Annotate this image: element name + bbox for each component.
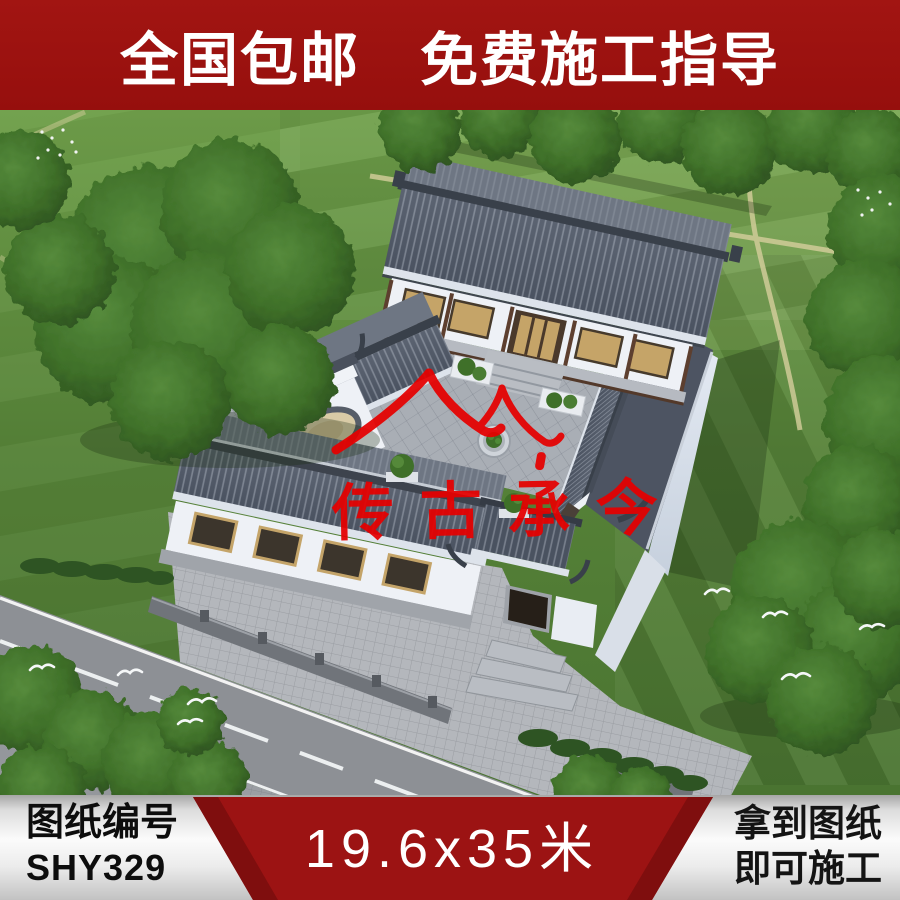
top-banner-text: 全国包邮 免费施工指导 [120,13,780,97]
dimensions-text: 19.6x35米 [305,819,599,879]
top-banner: 全国包邮 免费施工指导 [0,0,900,110]
construction-note-line1: 拿到图纸 [716,801,900,846]
aerial-photo: 传古承今 [0,110,900,795]
bottom-banner: 图纸编号 SHY329 19.6x35米 拿到图纸 即可施工 [0,795,900,900]
watermark-text: 传古承今 [330,474,684,549]
construction-note-panel: 拿到图纸 即可施工 [716,801,900,891]
product-image: 全国包邮 免费施工指导 [0,0,900,900]
construction-note-line2: 即可施工 [716,846,900,891]
